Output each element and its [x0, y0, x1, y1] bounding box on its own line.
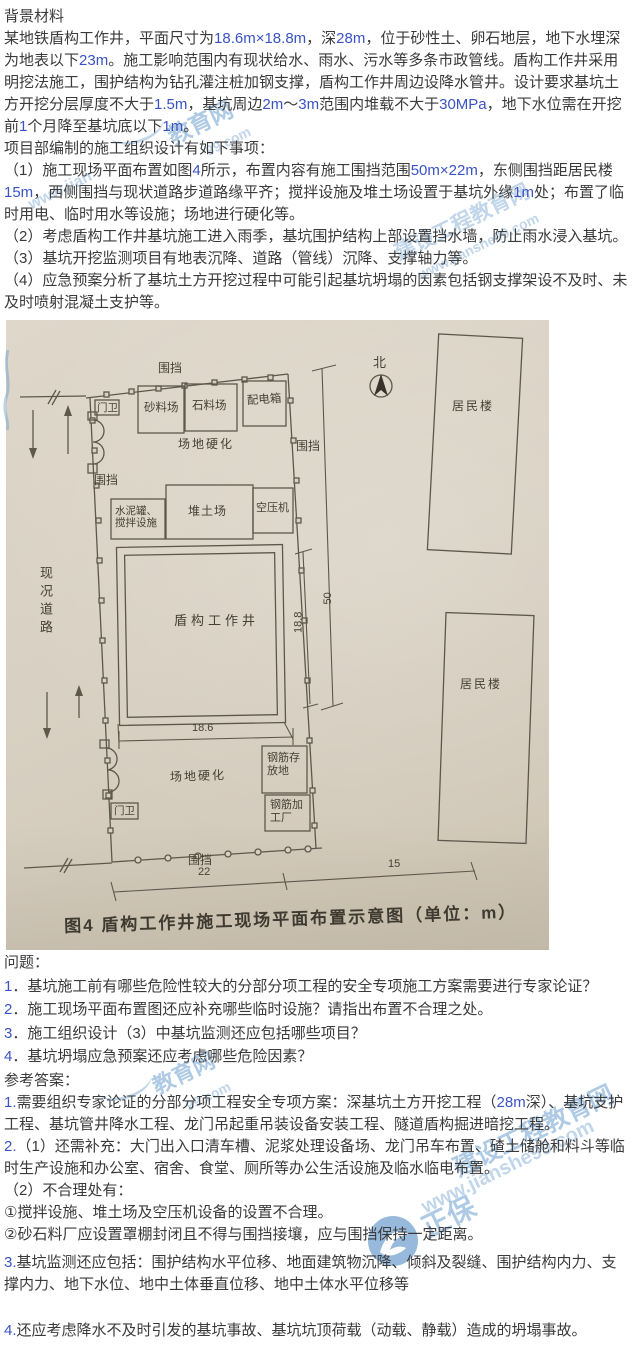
background-material-section: 背景材料 某地铁盾构工作井，平面尺寸为18.6m×18.8m，深28m，位于砂性…: [4, 6, 630, 314]
label-dim-50: 50: [322, 592, 335, 604]
label-dim-22: 22: [198, 866, 210, 879]
label-sand-yard: 砂料场: [144, 402, 179, 415]
answer-4: 4.还应考虑降水不及时引发的基坑事故、基坑坑顶荷载（动载、静载）造成的坍塌事故。: [4, 1320, 631, 1342]
residential-bottom-box: [438, 613, 534, 844]
label-fence-left: 围挡: [94, 474, 118, 488]
answer-2: 2.（1）还需补充：大门出入口清车槽、泥浆处理设备场、龙门吊车布置、碴土储舱和料…: [4, 1136, 631, 1180]
label-residential-bottom: 居民楼: [460, 678, 502, 692]
question-1: 1．基坑施工前有哪些危险性较大的分部分项工程的安全专项施工方案需要进行专家论证？: [4, 975, 631, 999]
exam-document-page: 背景材料 某地铁盾构工作井，平面尺寸为18.6m×18.8m，深28m，位于砂性…: [0, 0, 634, 1366]
residential-top-box: [427, 334, 522, 554]
label-guard-bottom: 门卫: [114, 805, 135, 817]
gate-symbols: [88, 412, 119, 799]
answer-1: 1.需要组织专家论证的分部分项工程安全专项方案：深基坑土方开挖工程（28m深）、…: [4, 1092, 631, 1136]
answer-2-point-1: ①搅拌设施、堆土场及空压机设备的设置不合理。: [4, 1202, 631, 1224]
answers-heading: 参考答案：: [4, 1069, 631, 1093]
plan-item-3: （3）基坑开挖监测项目有地表沉降、道路（管线）沉降、支撑轴力等。: [4, 248, 630, 270]
answer-3: 3.基坑监测还应包括：围护结构水平位移、地面建筑物沉降、倾斜及裂缝、围护结构内力…: [4, 1252, 631, 1296]
label-harden-top: 场地硬化: [178, 438, 234, 452]
label-soil-pile: 堆土场: [188, 505, 227, 519]
label-stone-yard: 石料场: [192, 400, 227, 413]
north-arrow-icon: [370, 374, 392, 397]
watermark-squiggle: [0, 348, 16, 432]
label-harden-bottom: 场地硬化: [170, 769, 226, 785]
site-plan-photo: 围挡 门卫 砂料场 石料场 配电箱 场地硬化 围挡 围挡 水泥罐、搅拌设施 堆土…: [6, 320, 549, 950]
plan-item-1: （1）施工现场平面布置如图4所示，布置内容有施工围挡范围50m×22m，东侧围挡…: [4, 160, 630, 226]
questions-heading: 问题：: [4, 951, 631, 975]
question-4: 4．基坑坍塌应急预案还应考虑哪些危险因素？: [4, 1045, 631, 1069]
answer-2-sub: （2）不合理处有：: [4, 1180, 631, 1202]
label-dim-18-8: 18.8: [292, 612, 305, 633]
label-existing-road: 现况道路: [36, 566, 55, 638]
label-cement-mixing: 水泥罐、搅拌设施: [115, 505, 163, 529]
plan-item-4: （4）应急预案分析了基坑土方开挖过程中可能引起基坑坍塌的因素包括钢支撑架设不及时…: [4, 270, 630, 314]
answers-block: 1.需要组织专家论证的分部分项工程安全专项方案：深基坑土方开挖工程（28m深）、…: [4, 1092, 631, 1342]
label-dim-15: 15: [388, 858, 400, 871]
questions-answers-section: 问题： 1．基坑施工前有哪些危险性较大的分部分项工程的安全专项施工方案需要进行专…: [4, 951, 631, 1342]
label-rebar-storage: 钢筋存放地: [267, 752, 305, 777]
label-air-compressor: 空压机: [256, 502, 289, 515]
background-heading: 背景材料: [4, 6, 630, 28]
question-2: 2．施工现场平面布置图还应补充哪些临时设施？请指出布置不合理之处。: [4, 998, 631, 1022]
question-3: 3．施工组织设计（3）中基坑监测还应包括哪些项目？: [4, 1022, 631, 1046]
questions-block: 问题： 1．基坑施工前有哪些危险性较大的分部分项工程的安全专项施工方案需要进行专…: [4, 951, 631, 1092]
plan-item-2: （2）考虑盾构工作井基坑施工进入雨季，基坑围护结构上部设置挡水墙，防止雨水浸入基…: [4, 226, 630, 248]
label-north: 北: [373, 356, 386, 371]
site-plan-drawing: [6, 320, 549, 950]
label-guard-top: 门卫: [97, 402, 118, 414]
answer-2-point-2: ②砂石料厂应设置罩棚封闭且不得与围挡接壤，应与围挡保持一定距离。: [4, 1224, 631, 1246]
label-residential-top: 居民楼: [452, 400, 494, 414]
label-rebar-plant: 钢筋加工厂: [270, 799, 308, 824]
label-power-box: 配电箱: [247, 393, 282, 409]
label-dim-18-6: 18.6: [192, 722, 213, 735]
label-fence-top: 围挡: [158, 362, 182, 376]
background-paragraph: 某地铁盾构工作井，平面尺寸为18.6m×18.8m，深28m，位于砂性土、卵石地…: [4, 28, 630, 138]
shield-shaft-box: [116, 545, 285, 726]
label-shield-shaft: 盾构工作井: [174, 614, 259, 629]
plan-intro-line: 项目部编制的施工组织设计有如下事项：: [4, 138, 630, 160]
label-fence-right: 围挡: [296, 440, 320, 454]
